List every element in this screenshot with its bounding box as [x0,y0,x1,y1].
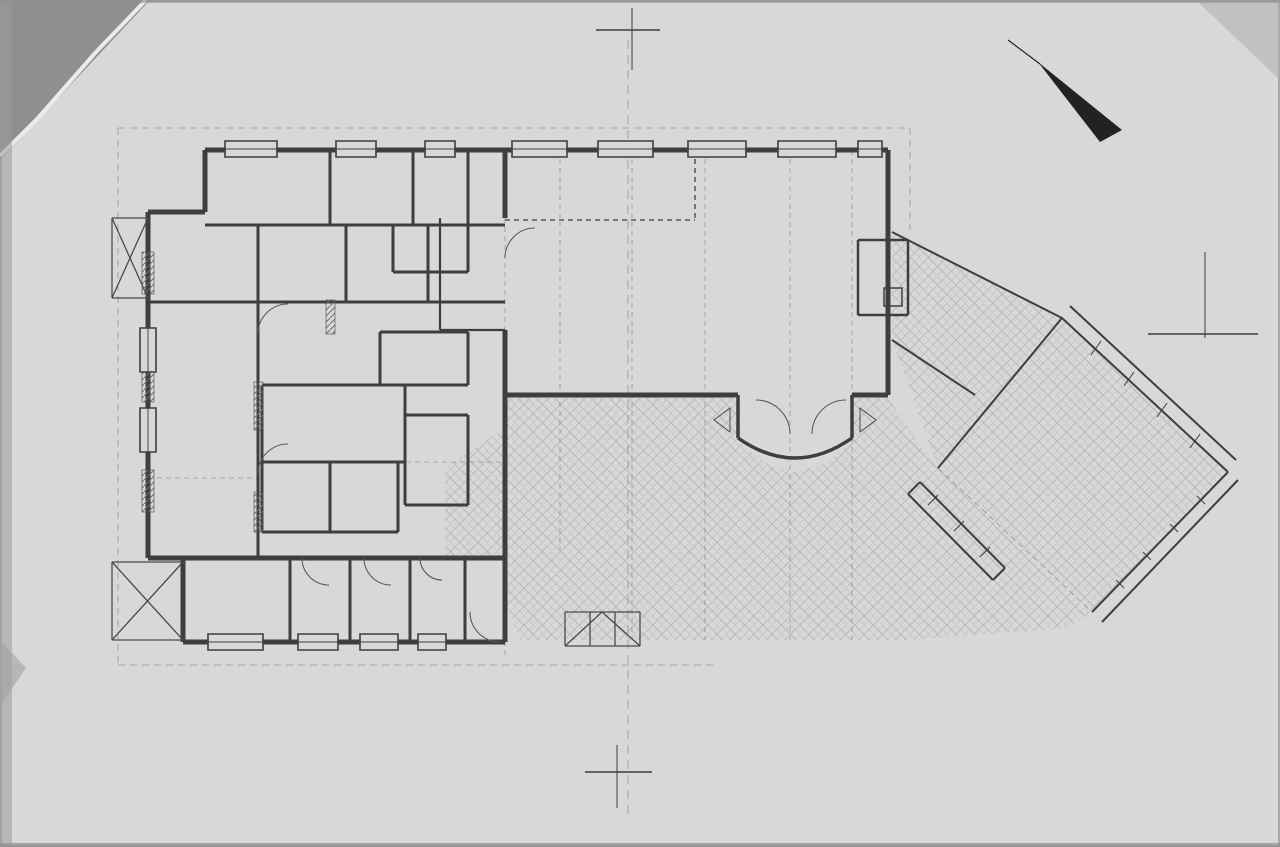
floor-plan-canvas [0,0,1280,847]
scanned-floorplan-page [0,0,1280,847]
